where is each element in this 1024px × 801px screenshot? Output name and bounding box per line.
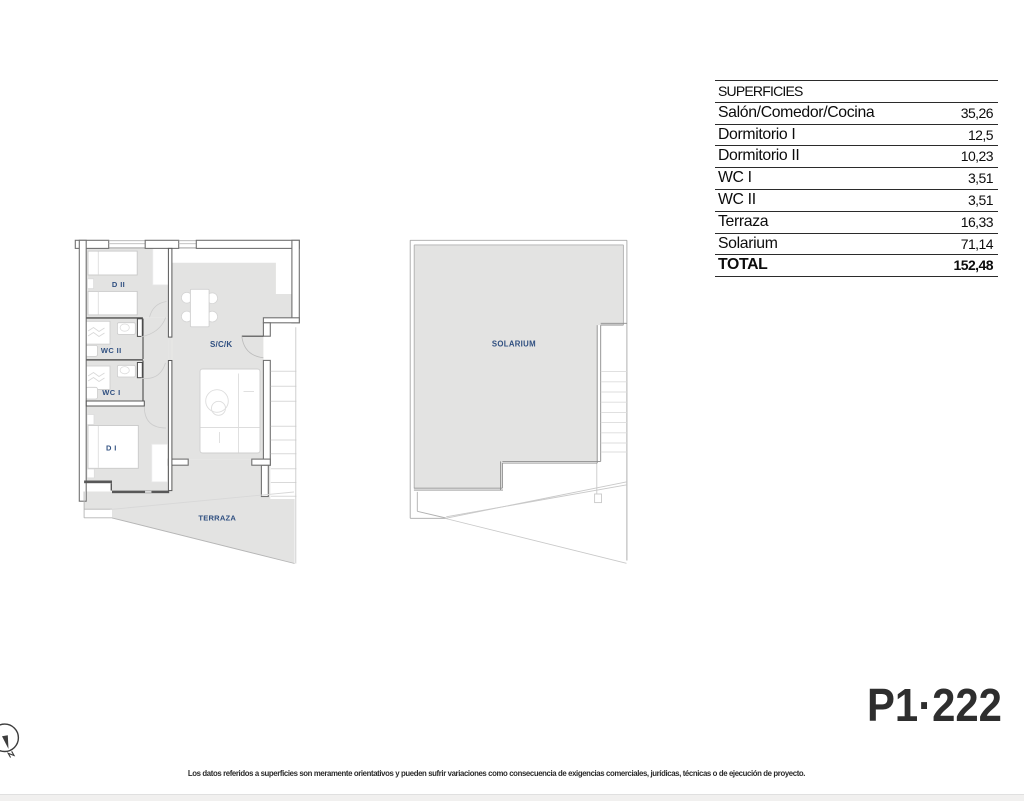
svg-text:S/C/K: S/C/K: [210, 340, 232, 349]
svg-text:D I: D I: [106, 444, 117, 453]
svg-text:D II: D II: [112, 280, 125, 289]
svg-text:WC I: WC I: [102, 388, 120, 397]
svg-text:WC II: WC II: [101, 346, 122, 355]
svg-text:TERRAZA: TERRAZA: [198, 513, 236, 522]
svg-text:SOLARIUM: SOLARIUM: [492, 340, 536, 349]
